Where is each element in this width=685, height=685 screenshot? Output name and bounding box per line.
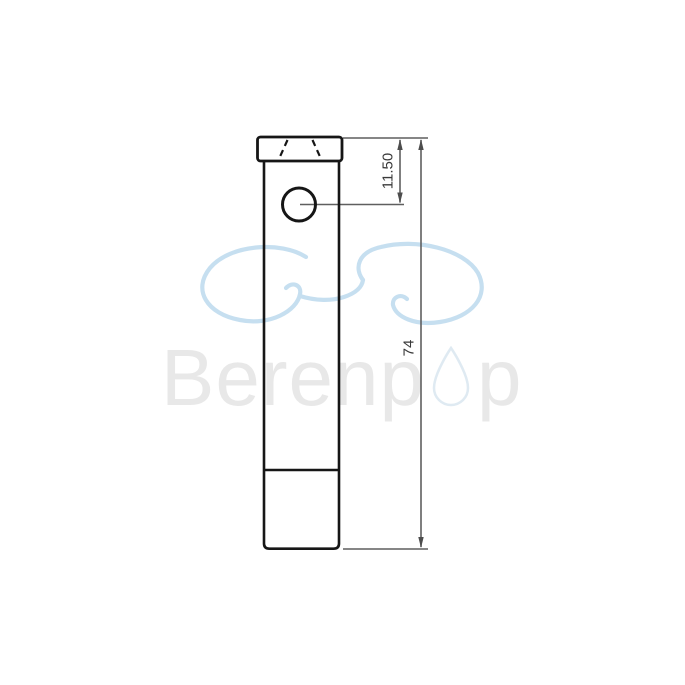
hole-circle <box>283 188 316 221</box>
watermark-brand-right: p <box>477 338 523 418</box>
arrowhead-overall-bottom <box>418 537 423 548</box>
technical-drawing-page: Berenp p <box>0 0 685 685</box>
dimension-value-hole-offset: 11.50 <box>380 153 397 189</box>
arrowhead-hole-bottom <box>397 193 402 204</box>
hidden-taper-line-right <box>313 140 322 160</box>
hidden-taper-line-left <box>279 140 288 160</box>
watermark-brand: Berenp p <box>161 338 522 418</box>
part-cap-outline <box>258 137 343 161</box>
arrowhead-hole-top <box>397 139 402 150</box>
watermark-brand-left: Berenp <box>161 338 425 418</box>
droplet-icon <box>429 345 473 409</box>
arrowhead-overall-top <box>418 139 423 150</box>
dimension-value-overall-length: 74 <box>401 340 418 357</box>
